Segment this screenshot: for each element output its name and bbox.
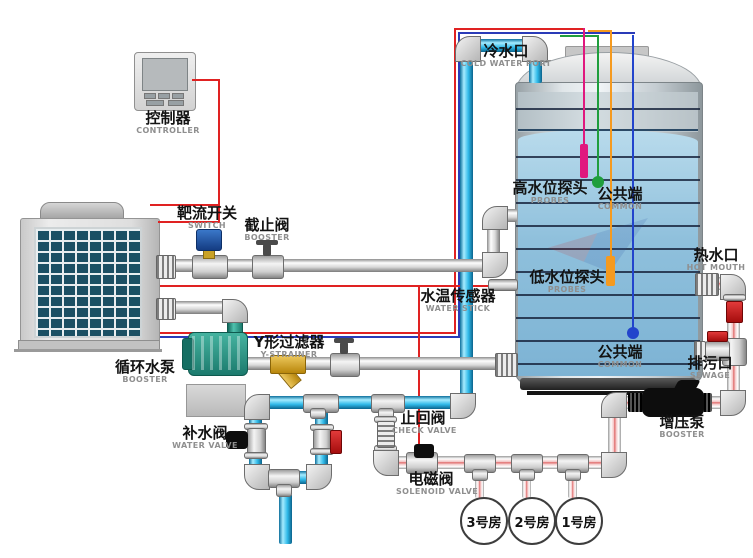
diagram: 控制器 CONTROLLER 靶流开关 SWITCH 截止阀 BOOSTER 循… (0, 0, 753, 558)
pipe-elbow (482, 252, 508, 278)
label-check-valve: 止回阀 CHECK VALVE (392, 411, 454, 435)
label-stop-valve: 截止阀 BOOSTER (227, 218, 307, 242)
common-top-terminal (592, 176, 604, 188)
pipe-tee-stub (519, 469, 535, 481)
pipe-elbow (373, 450, 399, 476)
cold-main-pipe (258, 396, 460, 409)
label-solenoid: 电磁阀 SOLENOID VALVE (396, 472, 466, 496)
pipe-tee-stub (565, 469, 581, 481)
pipe-elbow (482, 206, 508, 230)
makeup-valve-actuator (226, 431, 248, 449)
tank-band (516, 179, 700, 181)
high-level-probe (580, 144, 588, 178)
pipe-coupling (695, 273, 719, 296)
pipe-tee-stub (276, 484, 292, 497)
stop-valve-handle (256, 240, 278, 245)
tank-band (516, 108, 700, 110)
heat-pump-grille (34, 227, 142, 338)
room-3: 3号房 (460, 497, 508, 545)
sewage-valve-handle (707, 331, 728, 342)
pipe-elbow (450, 393, 476, 419)
makeup-valve-body (247, 428, 266, 455)
temp-sensor-fitting (488, 279, 518, 291)
stop-valve-stem (263, 244, 271, 256)
tank-band (516, 363, 700, 365)
pipe-elbow (601, 452, 627, 478)
tank-band (516, 294, 700, 296)
controller-wire (218, 79, 220, 223)
pipe-coupling (694, 341, 706, 361)
room-1: 1号房 (555, 497, 603, 545)
wire-orange-top (588, 30, 612, 32)
tank-band (516, 202, 700, 204)
tank-band (516, 317, 700, 319)
sewage-valve-body (705, 341, 730, 361)
wire-blue (632, 35, 634, 331)
pipe-segment (475, 478, 484, 498)
circulation-pump-base (186, 384, 246, 417)
stop-valve-body (252, 255, 284, 279)
solenoid-valve-body (414, 444, 434, 458)
wire-sensor (152, 285, 488, 287)
room-2: 2号房 (508, 497, 556, 545)
wire-red-top (454, 28, 585, 30)
wire-red-vertical (454, 28, 456, 334)
check-valve-body (377, 421, 395, 448)
cold-riser-pipe (460, 54, 473, 396)
tank-band (516, 156, 700, 158)
label-flow-switch: 靶流开关 SWITCH (165, 206, 249, 230)
pipe-coupling (156, 255, 176, 279)
pipe-elbow (522, 36, 548, 62)
pipe-segment (568, 478, 577, 498)
gate-valve-body (330, 353, 360, 377)
pipe-tee-stub (472, 469, 488, 481)
wire-magenta (583, 28, 585, 148)
gate-valve-handle (334, 338, 354, 343)
pipe-elbow (222, 299, 248, 323)
pipe-elbow (306, 464, 332, 490)
controller-wire (150, 204, 220, 206)
pipe-segment (522, 478, 531, 498)
pipe-elbow (244, 464, 270, 490)
pipe-elbow (244, 394, 270, 420)
controller-screen (142, 58, 188, 91)
wire-orange (610, 31, 612, 261)
wire-green (597, 35, 599, 180)
supply-pipe (279, 494, 292, 544)
label-circulation-pump: 循环水泵 BOOSTER (103, 360, 187, 384)
pipe-tee-stub (310, 408, 326, 419)
pipe-elbow (601, 392, 627, 418)
label-controller: 控制器 CONTROLLER (118, 111, 218, 135)
pipe-segment (608, 412, 621, 456)
y-strainer-body (270, 355, 306, 374)
heat-pump-feet (14, 349, 162, 352)
tank-headspace (518, 92, 698, 132)
tank-band (516, 225, 700, 227)
union-flange (723, 294, 746, 301)
pipe-elbow (720, 390, 746, 416)
label-booster-pump: 增压泵 BOOSTER (648, 415, 716, 439)
pipe-coupling (495, 353, 518, 377)
low-level-probe (606, 256, 615, 286)
circulation-pump-ribs (192, 336, 242, 370)
tank-waterline (518, 129, 698, 131)
controller-button (172, 93, 184, 99)
controller-wire (158, 221, 220, 223)
booster-pump-body (642, 388, 704, 417)
wire-green-top (560, 35, 598, 37)
pipe-coupling (156, 298, 176, 320)
gate-valve-stem (340, 342, 348, 354)
tank-band (516, 340, 700, 342)
flow-switch-body (196, 229, 222, 251)
controller-wire (192, 79, 220, 81)
controller-button (158, 93, 170, 99)
controller-button (168, 100, 184, 106)
bypass-valve-handle (330, 430, 342, 454)
common-bottom-terminal (627, 327, 639, 339)
controller-button (146, 100, 164, 106)
riser-valve (726, 301, 743, 323)
makeup-valve-flange (244, 452, 268, 459)
pipe-elbow (455, 36, 481, 62)
controller-button (144, 93, 156, 99)
wire-navy-top (458, 32, 635, 34)
